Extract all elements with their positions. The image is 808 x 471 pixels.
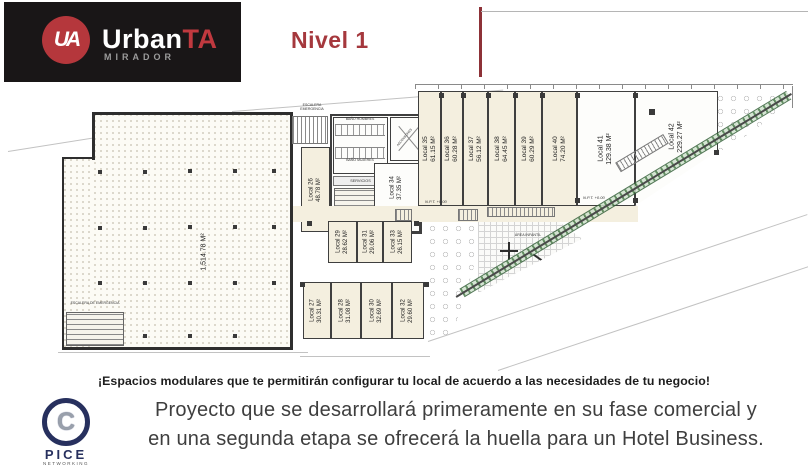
footer-body-line1: Proyecto que se desarrollará primerament… bbox=[155, 399, 757, 421]
local-36-label: Local 3660.28 M² bbox=[444, 136, 460, 162]
column-marker bbox=[307, 221, 312, 226]
local-38-label: Local 3864.45 M² bbox=[493, 136, 509, 162]
local-26-label: Local 2648.78 M² bbox=[308, 178, 323, 202]
wall bbox=[62, 157, 95, 159]
column-marker bbox=[98, 226, 102, 230]
local-40: Local 4074.20 M² bbox=[542, 91, 577, 206]
column-marker bbox=[714, 150, 719, 155]
local-31-label: Local 3129.06 M² bbox=[363, 230, 378, 254]
dimension-ticks bbox=[415, 84, 793, 89]
local-35: Local 3561.15 M² bbox=[418, 91, 441, 206]
local-30: Local 3032.69 M² bbox=[361, 282, 392, 339]
local-36: Local 3660.28 M² bbox=[441, 91, 463, 206]
wall-corridor bbox=[290, 112, 293, 350]
column-marker bbox=[188, 225, 192, 229]
local-34-label: Local 3437.35 M² bbox=[390, 176, 405, 200]
local-29: Local 2928.62 M² bbox=[328, 221, 357, 263]
column-marker bbox=[486, 93, 491, 98]
local-28: Local 2831.08 M² bbox=[331, 282, 361, 339]
column-marker bbox=[188, 334, 192, 338]
road-line bbox=[498, 265, 808, 371]
local-35-label: Local 3561.15 M² bbox=[421, 136, 437, 162]
column-marker bbox=[143, 334, 147, 338]
local-29-label: Local 2928.62 M² bbox=[335, 230, 350, 254]
planter bbox=[395, 209, 412, 221]
column-marker bbox=[233, 334, 237, 338]
column-marker bbox=[143, 170, 147, 174]
column-marker bbox=[233, 281, 237, 285]
local-41-label: Local 41129.38 M² bbox=[597, 133, 615, 165]
level-mark: N.P.T. +0.00 bbox=[425, 200, 447, 204]
pice-logo-name: PICE bbox=[40, 447, 92, 462]
column-marker bbox=[575, 93, 580, 98]
column-marker bbox=[575, 198, 580, 203]
column-marker bbox=[414, 221, 419, 226]
pice-logo-subtitle: NETWORKING bbox=[40, 461, 92, 466]
local-38: Local 3864.45 M² bbox=[488, 91, 515, 206]
column-marker bbox=[300, 282, 305, 287]
elevators-label: ASCENSORES bbox=[395, 126, 416, 150]
column-marker bbox=[272, 169, 276, 173]
column-marker bbox=[188, 281, 192, 285]
column-marker bbox=[272, 225, 276, 229]
local-39: Local 3960.29 M² bbox=[515, 91, 542, 206]
footer-body-text: Proyecto que se desarrollará primerament… bbox=[110, 396, 802, 454]
local-33-label: Local 3326.15 M² bbox=[390, 230, 405, 254]
column-marker bbox=[98, 281, 102, 285]
wall bbox=[62, 157, 64, 349]
planter bbox=[487, 207, 555, 217]
column-marker bbox=[540, 93, 545, 98]
local-37-label: Local 3756.12 M² bbox=[467, 136, 483, 162]
wall bbox=[92, 112, 95, 160]
wall bbox=[92, 112, 292, 115]
level-mark: N.P.T. +0.00 bbox=[583, 196, 605, 200]
pice-logo: C bbox=[42, 398, 90, 446]
local-27: Local 2730.31 M² bbox=[303, 282, 331, 339]
emergency-stairs bbox=[66, 312, 124, 346]
column-marker bbox=[461, 93, 466, 98]
sidewalk-line bbox=[58, 352, 308, 353]
column-marker bbox=[233, 225, 237, 229]
anchor-area-label: 1,514.78 M² bbox=[201, 233, 210, 270]
local-39-label: Local 3960.29 M² bbox=[520, 136, 536, 162]
column-marker bbox=[233, 169, 237, 173]
column-marker bbox=[272, 281, 276, 285]
column-marker bbox=[143, 226, 147, 230]
bathroom-fixtures bbox=[335, 124, 385, 136]
local-40-label: Local 4074.20 M² bbox=[551, 136, 567, 162]
column-marker bbox=[188, 169, 192, 173]
local-32: Local 3229.60 M² bbox=[392, 282, 424, 339]
local-27-label: Local 2730.31 M² bbox=[310, 299, 325, 323]
local-37: Local 3756.12 M² bbox=[463, 91, 488, 206]
column-marker bbox=[649, 109, 655, 115]
site-edge-right bbox=[792, 86, 793, 108]
local-31: Local 3129.06 M² bbox=[357, 221, 383, 263]
local-28-label: Local 2831.08 M² bbox=[339, 299, 354, 323]
column-marker bbox=[513, 93, 518, 98]
local-33: Local 3326.15 M² bbox=[383, 221, 412, 263]
bath-men-label: BAÑO HOMBRES bbox=[336, 118, 384, 122]
column-marker bbox=[439, 93, 444, 98]
stairs-top-block bbox=[292, 116, 328, 144]
stairs-label: ESCALERAEMERGENCIA bbox=[294, 104, 330, 112]
sidewalk-line bbox=[300, 356, 430, 357]
local-42-label: Local 42229.27 M² bbox=[668, 121, 686, 153]
planter bbox=[458, 209, 478, 221]
column-marker bbox=[633, 93, 638, 98]
wall bbox=[62, 347, 292, 350]
local-32-label: Local 3229.60 M² bbox=[401, 299, 416, 323]
local-30-label: Local 3032.69 M² bbox=[369, 299, 384, 323]
pice-logo-initial: C bbox=[57, 408, 75, 437]
emergency-stairs-label: ESCALERA DE EMERGENCIA bbox=[64, 302, 126, 306]
footer-body-line2: en una segunda etapa se ofrecerá la huel… bbox=[148, 428, 764, 450]
footer-highlight-text: ¡Espacios modulares que te permitirán co… bbox=[0, 374, 808, 388]
column-marker bbox=[98, 170, 102, 174]
column-marker bbox=[143, 281, 147, 285]
column-marker bbox=[633, 198, 638, 203]
elevator-room: ASCENSORES bbox=[390, 117, 420, 161]
